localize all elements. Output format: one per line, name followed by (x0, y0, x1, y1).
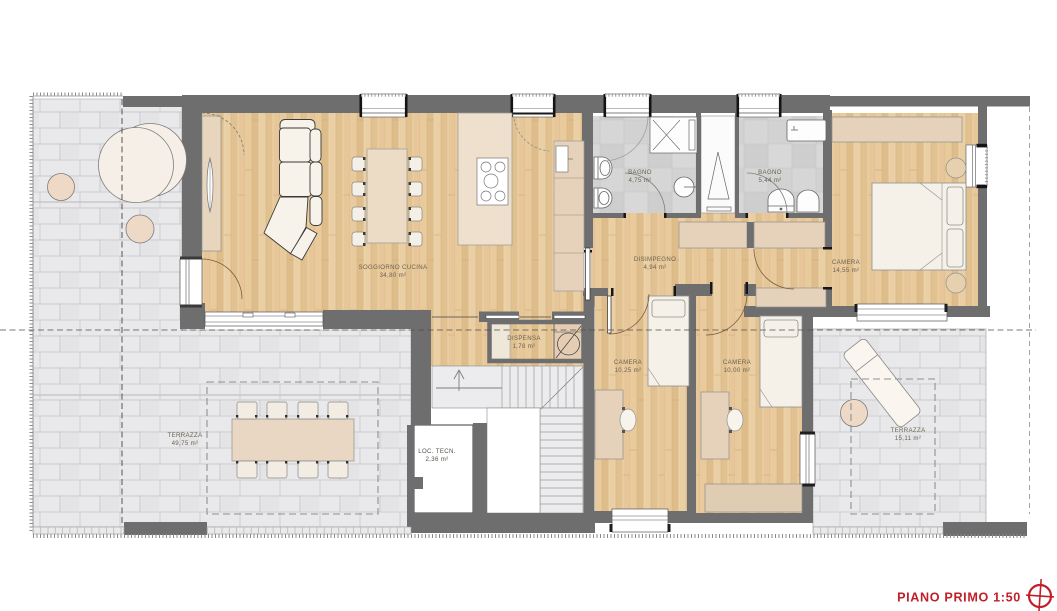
svg-text:DISIMPEGNO: DISIMPEGNO (634, 256, 676, 263)
svg-text:2,36 m²: 2,36 m² (425, 456, 448, 463)
svg-text:SOGGIORNO CUCINA: SOGGIORNO CUCINA (359, 264, 428, 271)
svg-text:10,00 m²: 10,00 m² (724, 367, 751, 374)
svg-text:CAMERA: CAMERA (832, 259, 861, 266)
svg-text:PIANO PRIMO 1:50: PIANO PRIMO 1:50 (897, 591, 1021, 605)
svg-text:1,78 m²: 1,78 m² (512, 343, 535, 350)
svg-text:4,94 m²: 4,94 m² (643, 264, 666, 271)
svg-text:34,80 m²: 34,80 m² (380, 272, 407, 279)
svg-text:BAGNO: BAGNO (628, 169, 652, 176)
svg-text:10,25 m²: 10,25 m² (615, 367, 642, 374)
svg-text:4,75 m²: 4,75 m² (628, 177, 651, 184)
svg-text:CAMERA: CAMERA (614, 359, 643, 366)
svg-text:CAMERA: CAMERA (723, 359, 752, 366)
svg-text:LOC. TECN.: LOC. TECN. (418, 448, 456, 455)
svg-text:5,44 m²: 5,44 m² (758, 177, 781, 184)
svg-text:15,11 m²: 15,11 m² (895, 435, 921, 442)
svg-text:14,55 m²: 14,55 m² (833, 267, 860, 274)
svg-text:49,75 m²: 49,75 m² (172, 440, 199, 447)
svg-text:DISPENSA: DISPENSA (507, 335, 541, 342)
svg-text:TERRAZZA: TERRAZZA (168, 432, 204, 439)
svg-text:TERRAZZA: TERRAZZA (891, 427, 927, 434)
svg-text:BAGNO: BAGNO (758, 169, 782, 176)
